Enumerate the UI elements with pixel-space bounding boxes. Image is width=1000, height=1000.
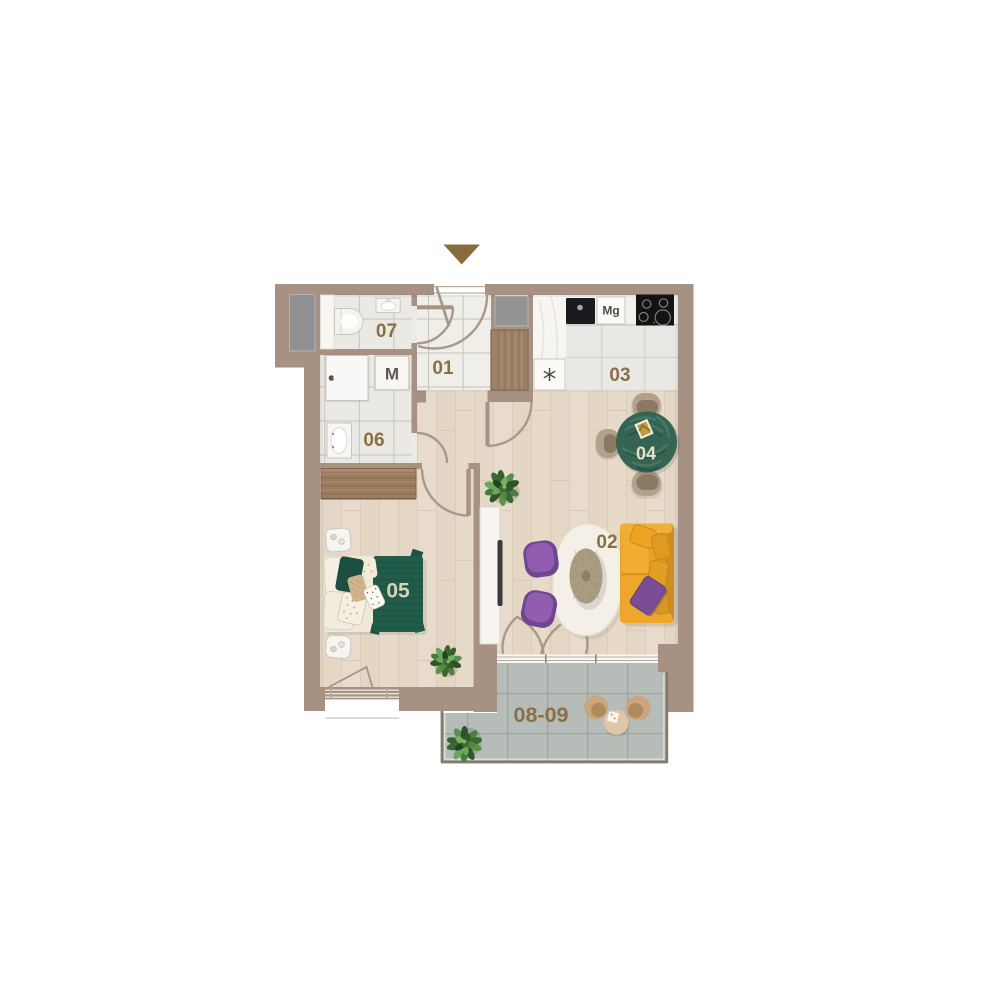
svg-text:05: 05 [386, 580, 410, 603]
svg-text:03: 03 [609, 365, 630, 386]
svg-text:01: 01 [432, 358, 454, 379]
svg-text:08-09: 08-09 [514, 703, 569, 727]
svg-text:02: 02 [596, 532, 617, 553]
svg-text:06: 06 [363, 430, 384, 451]
svg-text:07: 07 [376, 321, 397, 342]
svg-text:Mg: Mg [602, 304, 619, 318]
svg-text:M: M [385, 365, 399, 384]
svg-text:04: 04 [636, 444, 656, 464]
